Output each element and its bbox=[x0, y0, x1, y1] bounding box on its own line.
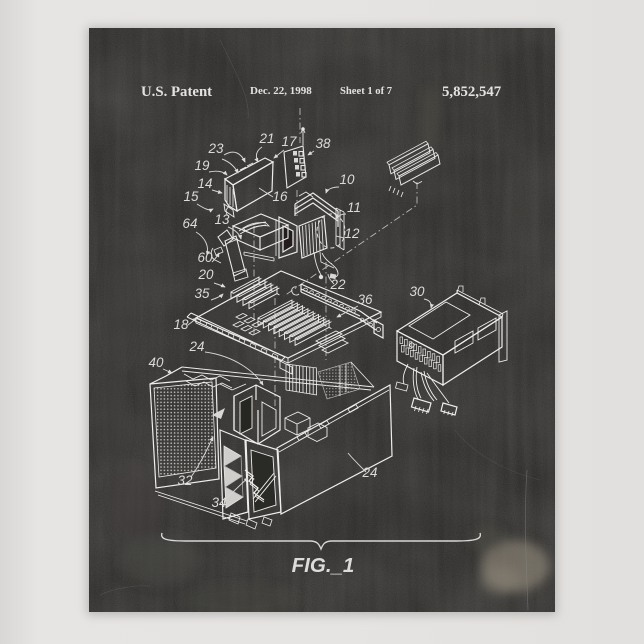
svg-text:23: 23 bbox=[208, 141, 224, 156]
svg-text:17: 17 bbox=[282, 134, 297, 149]
svg-text:22: 22 bbox=[330, 277, 346, 292]
svg-text:15: 15 bbox=[184, 189, 199, 204]
svg-text:38: 38 bbox=[316, 136, 331, 151]
svg-text:14: 14 bbox=[198, 176, 213, 191]
svg-text:36: 36 bbox=[358, 292, 373, 307]
svg-text:FIG._1: FIG._1 bbox=[292, 554, 355, 577]
svg-text:30: 30 bbox=[410, 284, 425, 299]
svg-text:21: 21 bbox=[259, 131, 275, 146]
svg-text:5,852,547: 5,852,547 bbox=[442, 84, 502, 100]
svg-text:64: 64 bbox=[183, 216, 198, 231]
svg-text:34: 34 bbox=[212, 495, 227, 510]
svg-text:20: 20 bbox=[198, 267, 214, 282]
svg-text:12: 12 bbox=[345, 226, 360, 241]
svg-text:35: 35 bbox=[195, 286, 210, 301]
svg-text:18: 18 bbox=[174, 317, 189, 332]
svg-text:19: 19 bbox=[195, 158, 210, 173]
svg-text:40: 40 bbox=[149, 355, 164, 370]
svg-text:24: 24 bbox=[362, 465, 378, 480]
svg-text:16: 16 bbox=[273, 189, 288, 204]
svg-text:U.S. Patent: U.S. Patent bbox=[141, 84, 212, 100]
svg-text:Sheet 1 of 7: Sheet 1 of 7 bbox=[340, 86, 393, 97]
svg-text:10: 10 bbox=[340, 172, 355, 187]
svg-text:11: 11 bbox=[347, 200, 361, 215]
svg-text:Dec. 22, 1998: Dec. 22, 1998 bbox=[250, 85, 312, 97]
svg-text:32: 32 bbox=[178, 473, 193, 488]
svg-text:60: 60 bbox=[198, 250, 213, 265]
svg-text:13: 13 bbox=[215, 212, 230, 227]
svg-text:24: 24 bbox=[189, 339, 205, 354]
